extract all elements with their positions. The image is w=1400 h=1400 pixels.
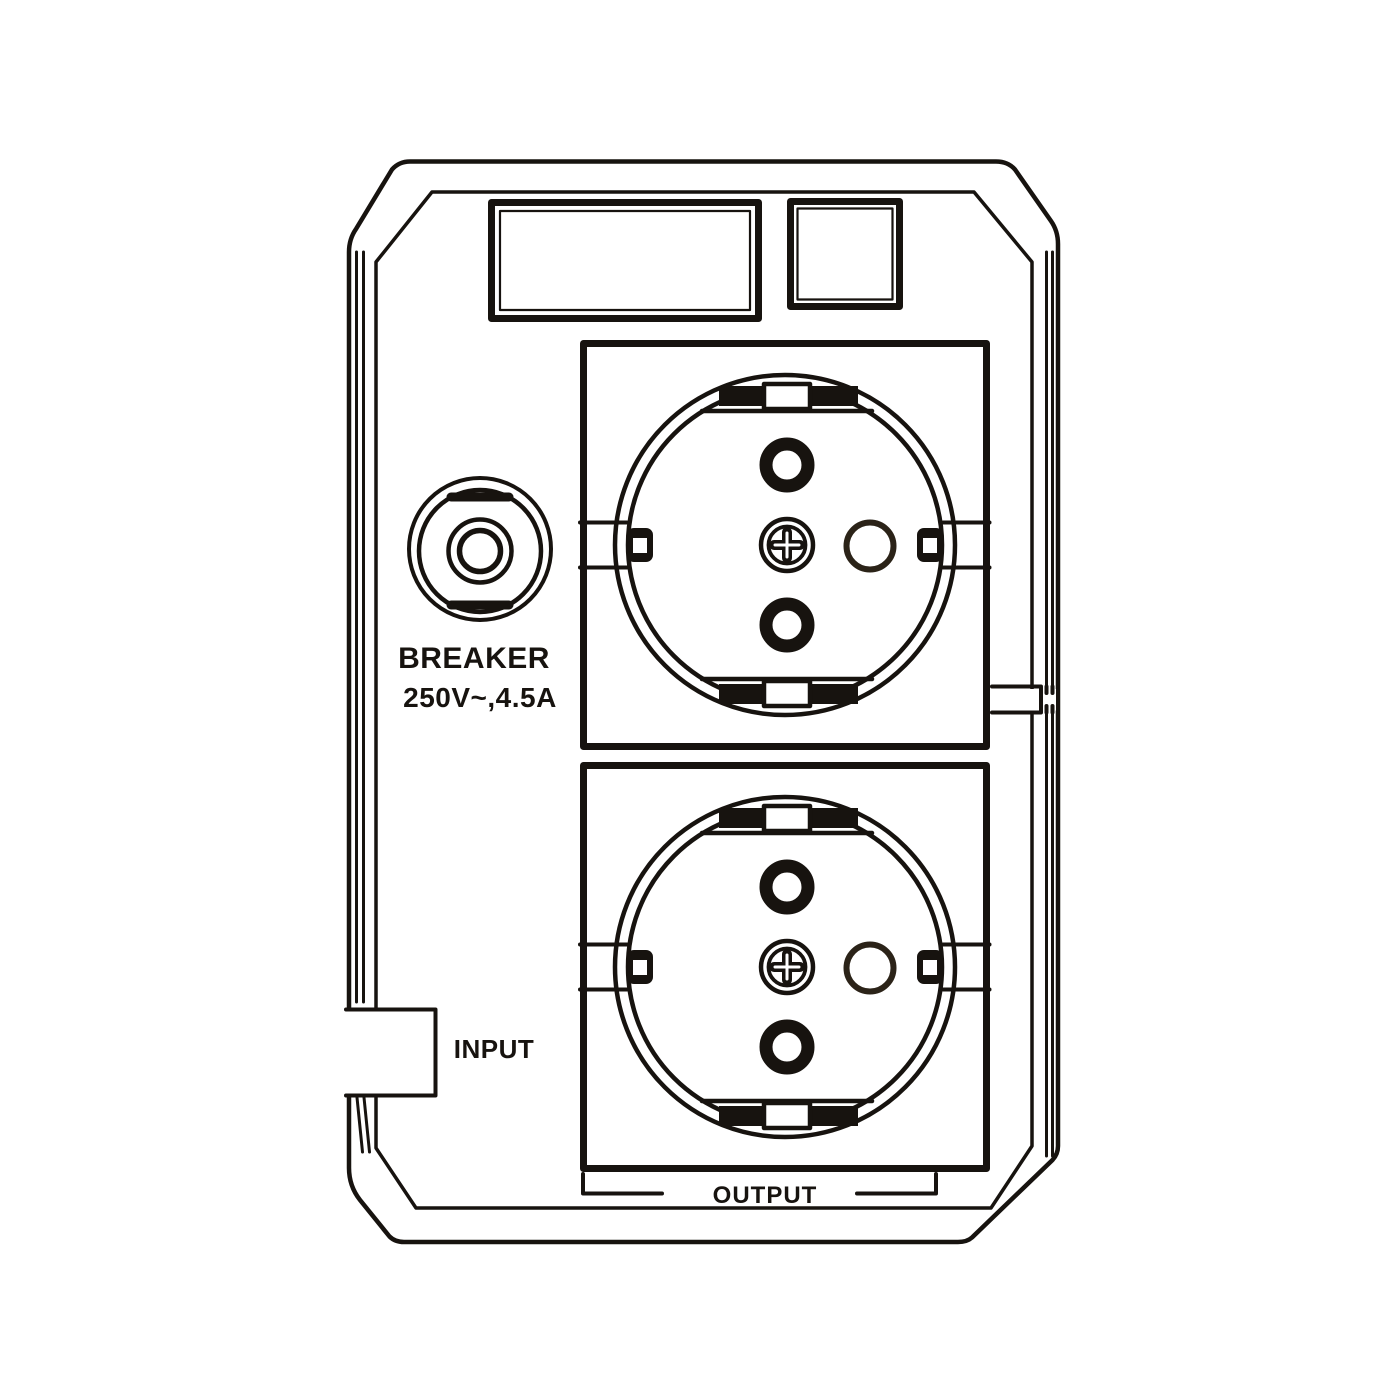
device-line-drawing: BREAKER 250V~,4.5A INPUT OUTPUT xyxy=(0,0,1400,1400)
input-notch-clearance xyxy=(340,1012,436,1095)
breaker-bezel xyxy=(419,490,541,612)
output-label: OUTPUT xyxy=(713,1182,818,1209)
breaker-cap xyxy=(460,531,501,572)
panel-diagram: BREAKER 250V~,4.5A INPUT OUTPUT xyxy=(0,0,1400,1400)
schuko-socket-top xyxy=(580,375,990,715)
display-window xyxy=(492,203,759,319)
breaker-rating-label: 250V~,4.5A xyxy=(403,682,557,713)
breaker-label: BREAKER xyxy=(398,642,550,675)
indicator-window-inner xyxy=(798,209,893,300)
schuko-socket-bottom xyxy=(580,797,990,1137)
indicator-window xyxy=(791,202,900,307)
display-window-inner xyxy=(500,211,750,310)
input-label: INPUT xyxy=(454,1034,535,1064)
breaker-button-icon xyxy=(409,478,551,620)
